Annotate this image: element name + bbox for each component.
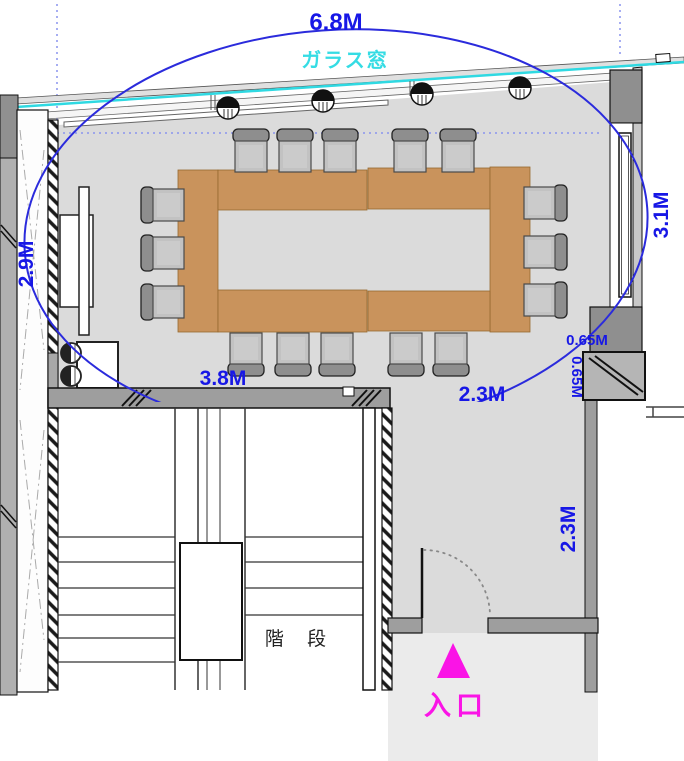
glass-window-label: ガラス窓 <box>301 48 389 72</box>
entrance-floor <box>388 633 598 761</box>
chair <box>524 282 567 318</box>
chair <box>524 234 567 270</box>
light-icon <box>509 77 531 99</box>
table-segment <box>368 291 490 331</box>
side-table <box>77 342 118 388</box>
light-icon <box>411 83 433 105</box>
glass-end-cap <box>656 54 671 63</box>
chair <box>275 333 311 376</box>
stairs-label: 階 段 <box>265 628 335 650</box>
stair-landing <box>180 543 242 660</box>
chair <box>524 185 567 221</box>
floor-plan: 6.8M ガラス窓 2.9M 3.1M 3.8M 2.3M 0.65M 0.65… <box>0 0 684 761</box>
chair <box>440 129 476 172</box>
table-segment <box>368 168 490 209</box>
stool <box>61 366 81 386</box>
chair <box>141 235 184 271</box>
stair-right-wall <box>363 408 375 690</box>
left-top-column <box>0 95 18 158</box>
chair <box>141 284 184 320</box>
corner-pillar <box>583 352 645 400</box>
chair <box>141 187 184 223</box>
bottom-wall <box>48 387 390 408</box>
table-segment <box>218 290 367 332</box>
floor-plan-drawing: 6.8M ガラス窓 2.9M 3.1M 3.8M 2.3M 0.65M 0.65… <box>0 0 684 761</box>
dim-corner-width: 0.65M <box>566 332 608 349</box>
chair <box>319 333 355 376</box>
chair <box>433 333 469 376</box>
dim-table-span: 3.8M <box>200 367 247 390</box>
table-segment <box>218 170 367 210</box>
right-ledge <box>646 407 684 417</box>
dim-lower-width: 2.3M <box>459 383 506 406</box>
chair <box>322 129 358 172</box>
whiteboard <box>79 187 89 335</box>
entrance-label: 入口 <box>424 691 488 721</box>
corridor-floor <box>382 400 585 633</box>
chair <box>392 129 428 172</box>
dim-right-depth: 3.1M <box>650 192 673 239</box>
dim-top-width: 6.8M <box>309 9 362 36</box>
chair <box>388 333 424 376</box>
light-icon <box>217 97 239 119</box>
dim-left-depth: 2.9M <box>15 241 38 288</box>
corridor-hatch-wall <box>382 408 392 690</box>
dim-corner-depth: 0.65M <box>568 356 585 398</box>
light-icon <box>312 90 334 112</box>
corridor-right-wall <box>585 400 597 692</box>
chair <box>277 129 313 172</box>
right-top-column <box>610 70 642 123</box>
chair <box>233 129 269 172</box>
dim-corridor-depth: 2.3M <box>557 506 580 553</box>
